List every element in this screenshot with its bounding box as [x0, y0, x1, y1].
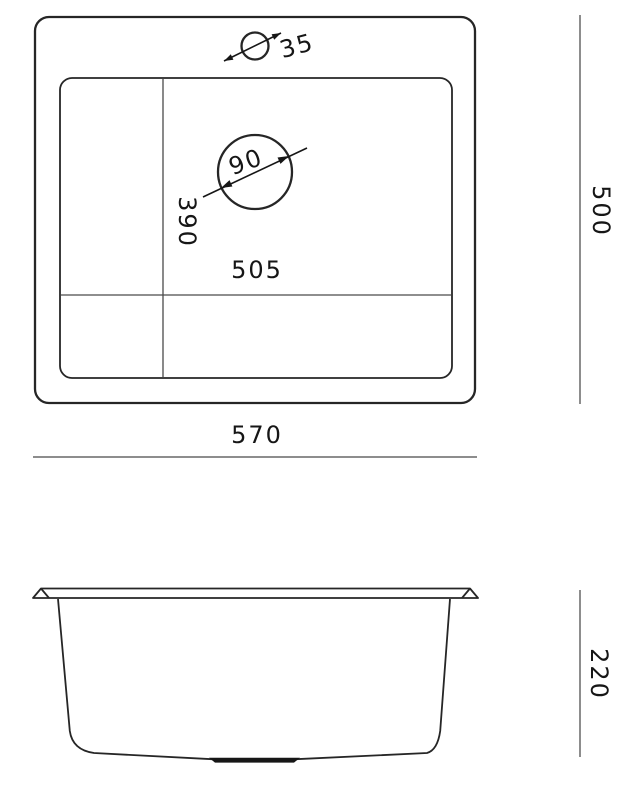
overall-width-label: 570	[231, 421, 283, 449]
sink-drawing: 35 90 390 505 500 570	[0, 0, 635, 800]
height-label: 220	[585, 648, 613, 700]
side-drain-stub	[209, 758, 300, 763]
side-bowl-profile	[58, 599, 450, 759]
side-rim-outline	[33, 589, 478, 599]
sink-top-view: 35 90 390 505 500 570	[33, 15, 615, 457]
bowl-depth-label: 390	[173, 196, 201, 248]
sink-drawing-page: 35 90 390 505 500 570	[0, 0, 635, 800]
overall-depth-label: 500	[587, 185, 615, 237]
sink-side-view: 220	[33, 589, 613, 763]
bowl-width-label: 505	[231, 256, 283, 284]
